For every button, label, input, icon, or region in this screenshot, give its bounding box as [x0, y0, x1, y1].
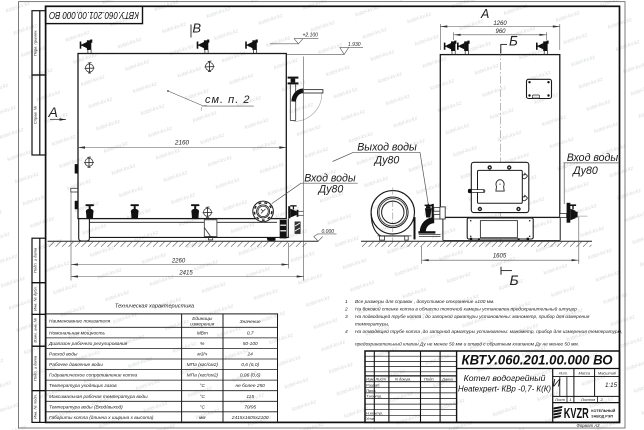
svg-text:измерения: измерения — [190, 323, 214, 328]
svg-text:2415х1605х2100: 2415х1605х2100 — [231, 415, 269, 421]
svg-text:МПа (кгс/см2): МПа (кгс/см2) — [187, 362, 219, 368]
svg-text:Расход воды: Расход воды — [49, 352, 78, 358]
svg-text:Котел водогрейный: Котел водогрейный — [464, 373, 546, 383]
svg-text:м3/ч: м3/ч — [197, 352, 207, 358]
svg-text:Листов: Листов — [580, 397, 595, 402]
svg-text:2260: 2260 — [171, 258, 186, 264]
svg-text:1:15: 1:15 — [605, 382, 618, 389]
svg-text:24: 24 — [247, 352, 254, 358]
svg-text:ЗАВОД РЭП: ЗАВОД РЭП — [591, 414, 613, 418]
svg-text:Формат А3: Формат А3 — [577, 423, 601, 428]
svg-text:КОТЕЛЬНЫЙ: КОТЕЛЬНЫЙ — [591, 409, 615, 413]
svg-text:На боковой стенке котла в обла: На боковой стенке котла в области топочн… — [355, 306, 577, 313]
svg-text:Гидравлическое сопротивление к: Гидравлическое сопротивление котла — [49, 373, 137, 379]
svg-text:Пров.: Пров. — [366, 388, 377, 393]
svg-text:70/95: 70/95 — [244, 404, 256, 410]
svg-text:N докум.: N докум. — [395, 376, 411, 381]
svg-text:KVZR: KVZR — [564, 406, 589, 422]
svg-text:Наименование показателя: Наименование показателя — [49, 319, 111, 325]
svg-text:Дата: Дата — [441, 376, 453, 381]
svg-text:Б: Б — [510, 272, 519, 288]
svg-text:°С: °С — [200, 394, 206, 400]
svg-text:Утв.: Утв. — [366, 416, 375, 421]
svg-text:0.000: 0.000 — [322, 229, 335, 235]
svg-text:4: 4 — [345, 329, 348, 335]
svg-text:1: 1 — [345, 299, 348, 305]
svg-text:Максимальная рабочая температу: Максимальная рабочая температура воды — [49, 394, 148, 400]
svg-text:Выход воды: Выход воды — [357, 142, 417, 154]
svg-text:Лит.: Лит. — [558, 371, 568, 376]
svg-text:температуры.: температуры. — [355, 322, 389, 327]
svg-text:Рабочее давление воды: Рабочее давление воды — [49, 362, 103, 368]
svg-text:2160: 2160 — [174, 140, 190, 147]
svg-text:Н.контр.: Н.контр. — [366, 410, 383, 415]
svg-text:см. п. 2: см. п. 2 — [205, 94, 250, 106]
svg-text:На отводящей трубе котла ,до з: На отводящей трубе котла ,до запорной ар… — [355, 328, 622, 335]
svg-text:0,06 (0,6): 0,06 (0,6) — [240, 373, 261, 379]
svg-text:2415: 2415 — [178, 270, 193, 276]
svg-text:115: 115 — [246, 394, 254, 400]
svg-text:мм: мм — [199, 416, 206, 421]
svg-text:предохранительный клапан Ду н: предохранительный клапан Ду не менее 50 … — [355, 341, 579, 348]
svg-text:1.930: 1.930 — [348, 42, 361, 48]
svg-text:1605: 1605 — [493, 254, 507, 260]
svg-text:Инв. № подл.: Инв. № подл. — [33, 394, 38, 419]
svg-text:Габариты котла (длинна х ширин: Габариты котла (длинна х ширина х высота… — [49, 415, 154, 421]
svg-text:Перв. примен.: Перв. примен. — [33, 30, 38, 57]
svg-text:В: В — [192, 20, 201, 35]
svg-text:50-100: 50-100 — [243, 341, 258, 347]
svg-text:0,6 (6,0): 0,6 (6,0) — [241, 362, 259, 368]
svg-text:Техническая характеристика: Техническая характеристика — [115, 304, 194, 310]
svg-text:1: 1 — [570, 397, 572, 402]
svg-text:Ду80: Ду80 — [318, 184, 344, 196]
svg-text:Вход воды: Вход воды — [304, 172, 356, 184]
svg-text:+2.100: +2.100 — [303, 33, 319, 39]
svg-text:1260: 1260 — [493, 21, 507, 27]
svg-text:Лист: Лист — [375, 376, 387, 381]
svg-text:А: А — [480, 7, 489, 21]
svg-text:Единицы: Единицы — [192, 316, 213, 322]
svg-text:Лист: Лист — [554, 397, 566, 402]
svg-text:Значение: Значение — [240, 319, 261, 325]
svg-text:960: 960 — [495, 29, 506, 35]
svg-text:Подп. и дата: Подп. и дата — [33, 247, 38, 273]
svg-text:Изм.: Изм. — [366, 376, 375, 381]
svg-text:Ду80: Ду80 — [572, 165, 598, 177]
svg-text:Взам. инв. №: Взам. инв. № — [33, 317, 38, 342]
svg-text:Температура воды (Вход/выход): Температура воды (Вход/выход) — [49, 404, 123, 410]
svg-text:На подводящей трубе котла ,: На подводящей трубе котла , до запорной … — [355, 313, 590, 320]
svg-text:Все размеры для справок , допу: Все размеры для справок , допустимое отк… — [355, 299, 495, 305]
svg-text:Температура уходящих газов: Температура уходящих газов — [49, 383, 117, 389]
svg-text:Ду80: Ду80 — [374, 155, 400, 167]
svg-text:А: А — [48, 104, 58, 120]
svg-text:Инв. № дубл.: Инв. № дубл. — [33, 286, 38, 311]
svg-text:Разраб.: Разраб. — [366, 382, 380, 387]
svg-text:Вход воды: Вход воды — [567, 152, 619, 164]
svg-text:Подп. и дата: Подп. и дата — [33, 355, 38, 381]
svg-text:Heatexpert- КВр -0,7- К(К): Heatexpert- КВр -0,7- К(К) — [458, 383, 551, 393]
svg-text:КВТУ.060.201.00.000 ВО: КВТУ.060.201.00.000 ВО — [49, 9, 139, 21]
svg-text:°С: °С — [200, 383, 206, 389]
svg-text:Диапазон рабочего регулировани: Диапазон рабочего регулирования — [48, 341, 128, 347]
svg-text:Масштаб: Масштаб — [598, 371, 617, 376]
svg-text:Б: Б — [509, 34, 518, 49]
svg-text:Справ. №: Справ. № — [33, 105, 38, 124]
svg-text:Подп.: Подп. — [424, 376, 435, 381]
svg-text:Номинальная мощность: Номинальная мощность — [49, 330, 106, 336]
svg-text:И: И — [552, 378, 560, 390]
svg-text:не более 250: не более 250 — [236, 383, 266, 389]
svg-text:°С: °С — [200, 404, 206, 410]
svg-text:МПа (кгс/см2): МПа (кгс/см2) — [187, 373, 219, 379]
svg-text:2: 2 — [344, 307, 348, 313]
svg-text:0,7: 0,7 — [247, 330, 254, 336]
svg-text:Т.контр.: Т.контр. — [366, 394, 382, 399]
svg-text:КВТУ.060.201.00.000 ВО: КВТУ.060.201.00.000 ВО — [462, 352, 613, 367]
svg-text:%: % — [200, 341, 205, 347]
svg-text:МВт: МВт — [197, 330, 208, 336]
svg-text:Масса: Масса — [578, 371, 590, 376]
svg-text:3: 3 — [345, 314, 348, 320]
